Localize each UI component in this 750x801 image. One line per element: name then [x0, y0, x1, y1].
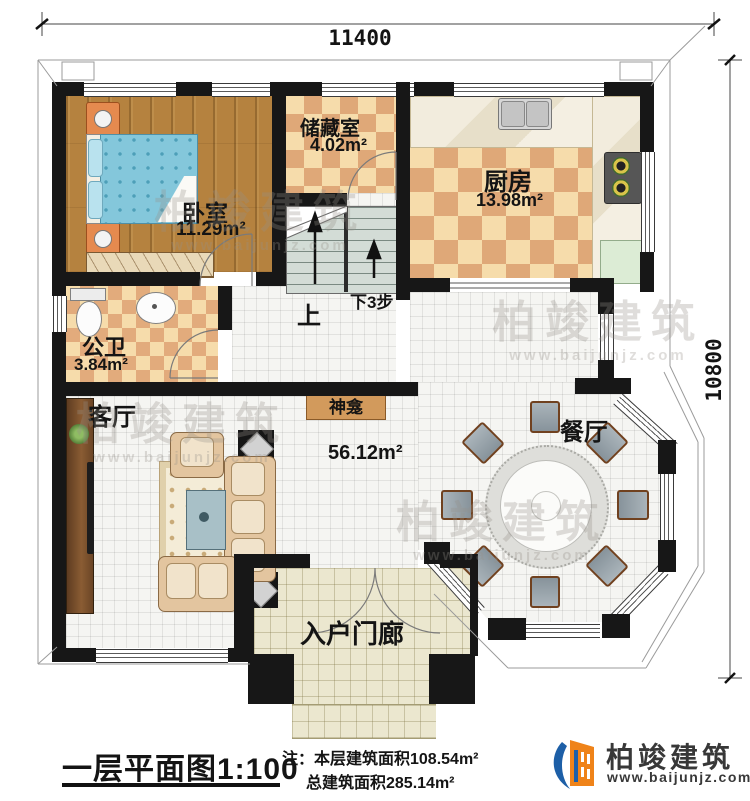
window: [641, 152, 655, 252]
kitchen-sink-bowl-icon: [526, 101, 549, 127]
staircase: [286, 206, 398, 294]
dining-chair: [530, 401, 560, 433]
window: [524, 624, 600, 638]
dimension-height-label: 10800: [702, 332, 726, 408]
window: [84, 83, 176, 97]
wall-segment: [234, 554, 310, 568]
wall-segment: [52, 272, 200, 286]
living-label: 客厅: [88, 397, 136, 432]
bay-corner: [658, 440, 676, 474]
porch-label: 入户门廊: [300, 614, 404, 651]
kitchen-sink-bowl-icon: [501, 101, 525, 127]
porch-wall: [246, 568, 254, 656]
plant-icon: [69, 424, 89, 444]
wall-segment: [414, 82, 454, 96]
sofa-cushion: [231, 500, 265, 534]
dining-table-center-icon: [531, 491, 561, 521]
bathroom-area: 3.84m²: [74, 355, 128, 375]
wall-segment: [52, 82, 84, 96]
sofa-cushion: [231, 462, 265, 496]
plan-title: 一层平面图1:100: [62, 744, 299, 788]
shrine-label: 神龛: [329, 393, 363, 418]
wall-segment: [410, 278, 450, 292]
wall-segment: [280, 193, 347, 206]
sink-drain-icon: [152, 304, 157, 309]
stairs-up-label: 上: [297, 296, 321, 331]
wall-segment: [218, 286, 232, 330]
sofa-cushion: [166, 563, 196, 599]
coffee-table-decor-icon: [199, 512, 209, 522]
dining-label: 餐厅: [560, 412, 608, 447]
kitchen-area: 13.98m²: [476, 190, 543, 211]
wall-segment: [176, 82, 212, 96]
dimension-width-label: 11400: [300, 26, 420, 50]
dining-chair: [530, 576, 560, 608]
dining-chair: [617, 490, 649, 520]
bay-corner: [658, 540, 676, 572]
nightstand-lamp-icon: [94, 230, 112, 248]
bay-corner: [602, 614, 630, 638]
nightstand-lamp-icon: [94, 110, 112, 128]
sofa-cushion: [198, 563, 228, 599]
tv-icon: [87, 462, 94, 554]
wall-segment: [52, 96, 66, 296]
window: [212, 83, 270, 97]
porch-steps: [292, 704, 436, 739]
window: [454, 83, 604, 97]
armchair-cushion: [180, 437, 214, 467]
dining-chair: [441, 490, 473, 520]
burner-icon: [612, 179, 630, 197]
toilet-icon: [70, 288, 106, 301]
pillow: [88, 181, 103, 219]
stairs-down-label: 下3步: [350, 288, 393, 313]
wall-segment: [396, 82, 410, 300]
window: [660, 474, 674, 542]
porch-column: [429, 654, 475, 704]
porch-column: [248, 654, 294, 704]
wall-segment: [52, 392, 66, 650]
baijun-logo-icon: [546, 734, 600, 790]
wall-segment: [598, 288, 614, 314]
wall-segment: [52, 382, 418, 396]
porch-wall: [470, 568, 478, 656]
window: [53, 296, 67, 332]
bay-corner: [575, 378, 631, 394]
pillow: [88, 139, 103, 177]
wall-segment: [256, 272, 286, 286]
plan-title-text: 一层平面图: [62, 753, 217, 786]
wall-segment: [52, 648, 96, 662]
footer-site: www.baijunjz.com: [607, 769, 750, 785]
kitchen-south-floor: [410, 292, 598, 382]
bedroom-area: 11.29m²: [176, 219, 246, 241]
window: [96, 649, 228, 663]
burner-icon: [612, 157, 630, 175]
wall-segment: [640, 82, 654, 152]
wall-segment: [272, 82, 286, 282]
floor-plan-canvas: 神龛: [0, 0, 750, 801]
bay-corner: [488, 618, 526, 640]
footer-note-line2: 总建筑面积285.14m²: [306, 769, 455, 793]
wall-segment: [640, 252, 654, 292]
storage-area: 4.02m²: [310, 135, 367, 156]
wall-segment: [440, 554, 478, 568]
window: [600, 312, 614, 362]
title-underline: [62, 783, 280, 787]
stair-rail: [344, 206, 348, 292]
living-area: 56.12m²: [328, 442, 403, 465]
footer-note-line1: 注：本层建筑面积108.54m²: [282, 745, 479, 769]
